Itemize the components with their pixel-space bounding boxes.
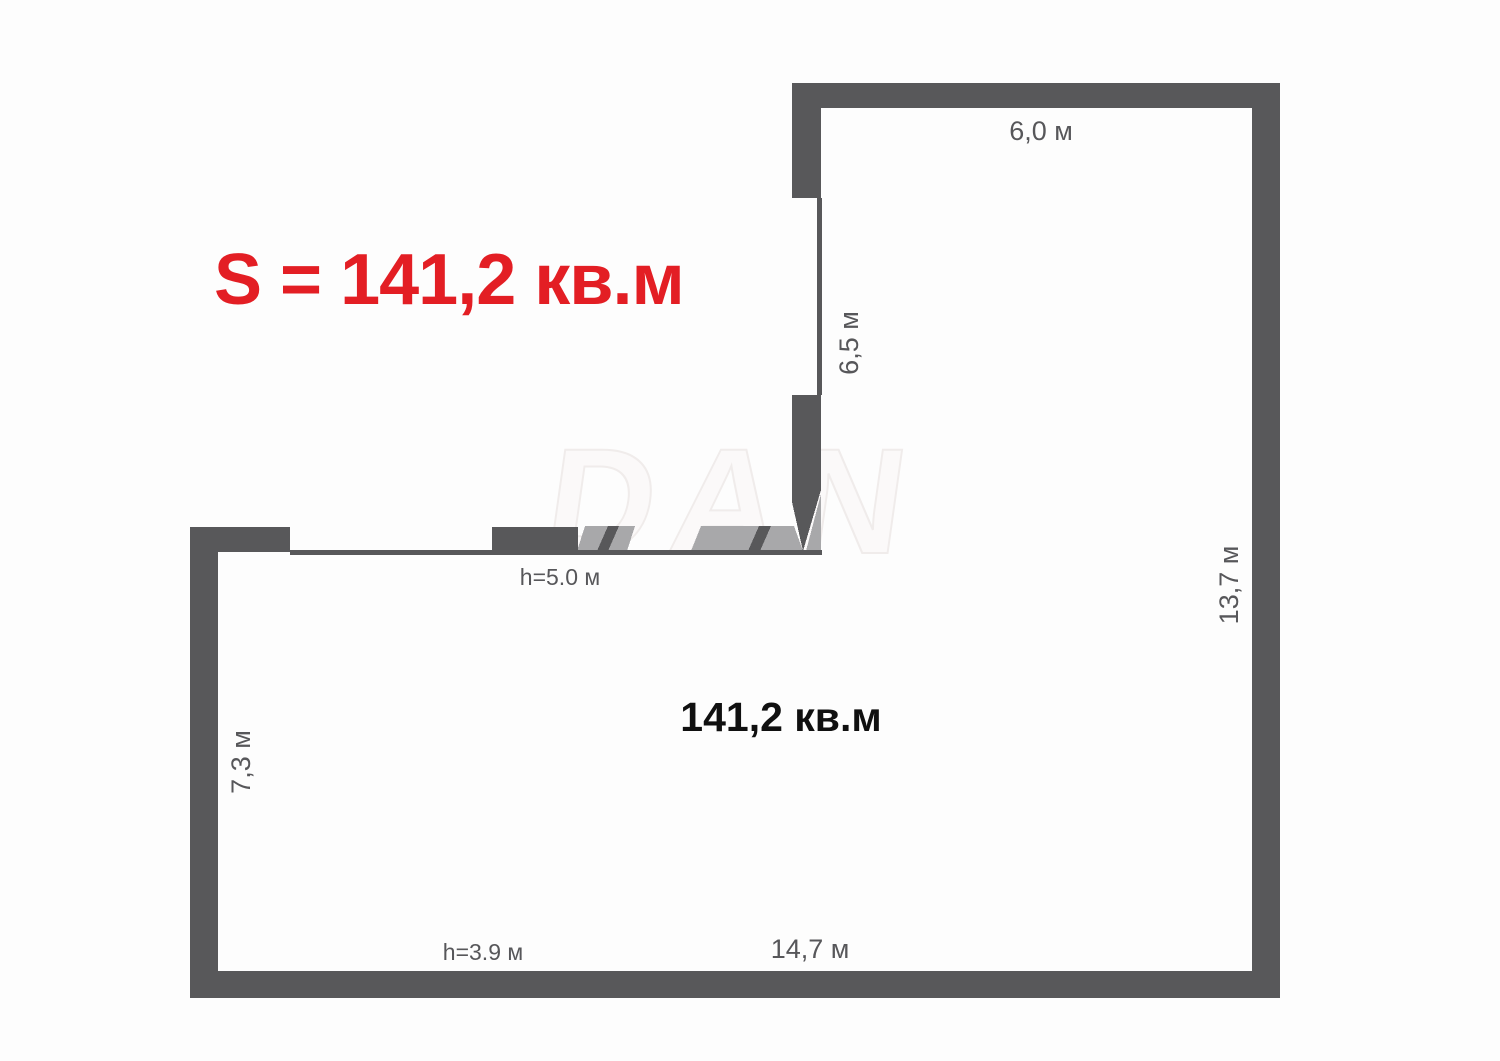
wall-niche-left-lower [792,395,821,491]
ceiling-height-upper: h=5.0 м [480,564,640,590]
dimension-right-height: 13,7 м [1214,525,1244,645]
room-area-label: 141,2 кв.м [631,695,931,739]
floor-plan-page: DAN S = 141,2 кв.м 141,2 кв.м 6,0 м 6,5 … [0,0,1500,1061]
wall-right [1252,83,1280,998]
dimension-left-height: 7,3 м [226,702,256,822]
wall-top [792,83,1280,108]
wall-bottom [190,971,1280,998]
window-line-horizontal [290,550,822,555]
window-pane-right [691,526,803,551]
wall-left [190,527,218,998]
wall-niche-left-upper [792,83,821,198]
wall-corner-upper-left-of-lower-room [190,527,290,552]
window-line-vertical [817,198,822,395]
floor-plan-drawing [0,0,1500,1061]
dimension-top-width: 6,0 м [961,116,1121,146]
dimension-niche-height: 6,5 м [834,283,864,403]
total-area-title: S = 141,2 кв.м [214,244,684,316]
dimension-bottom-width: 14,7 м [730,934,890,964]
wall-segment-middle [492,527,578,551]
ceiling-height-lower: h=3.9 м [403,939,563,965]
